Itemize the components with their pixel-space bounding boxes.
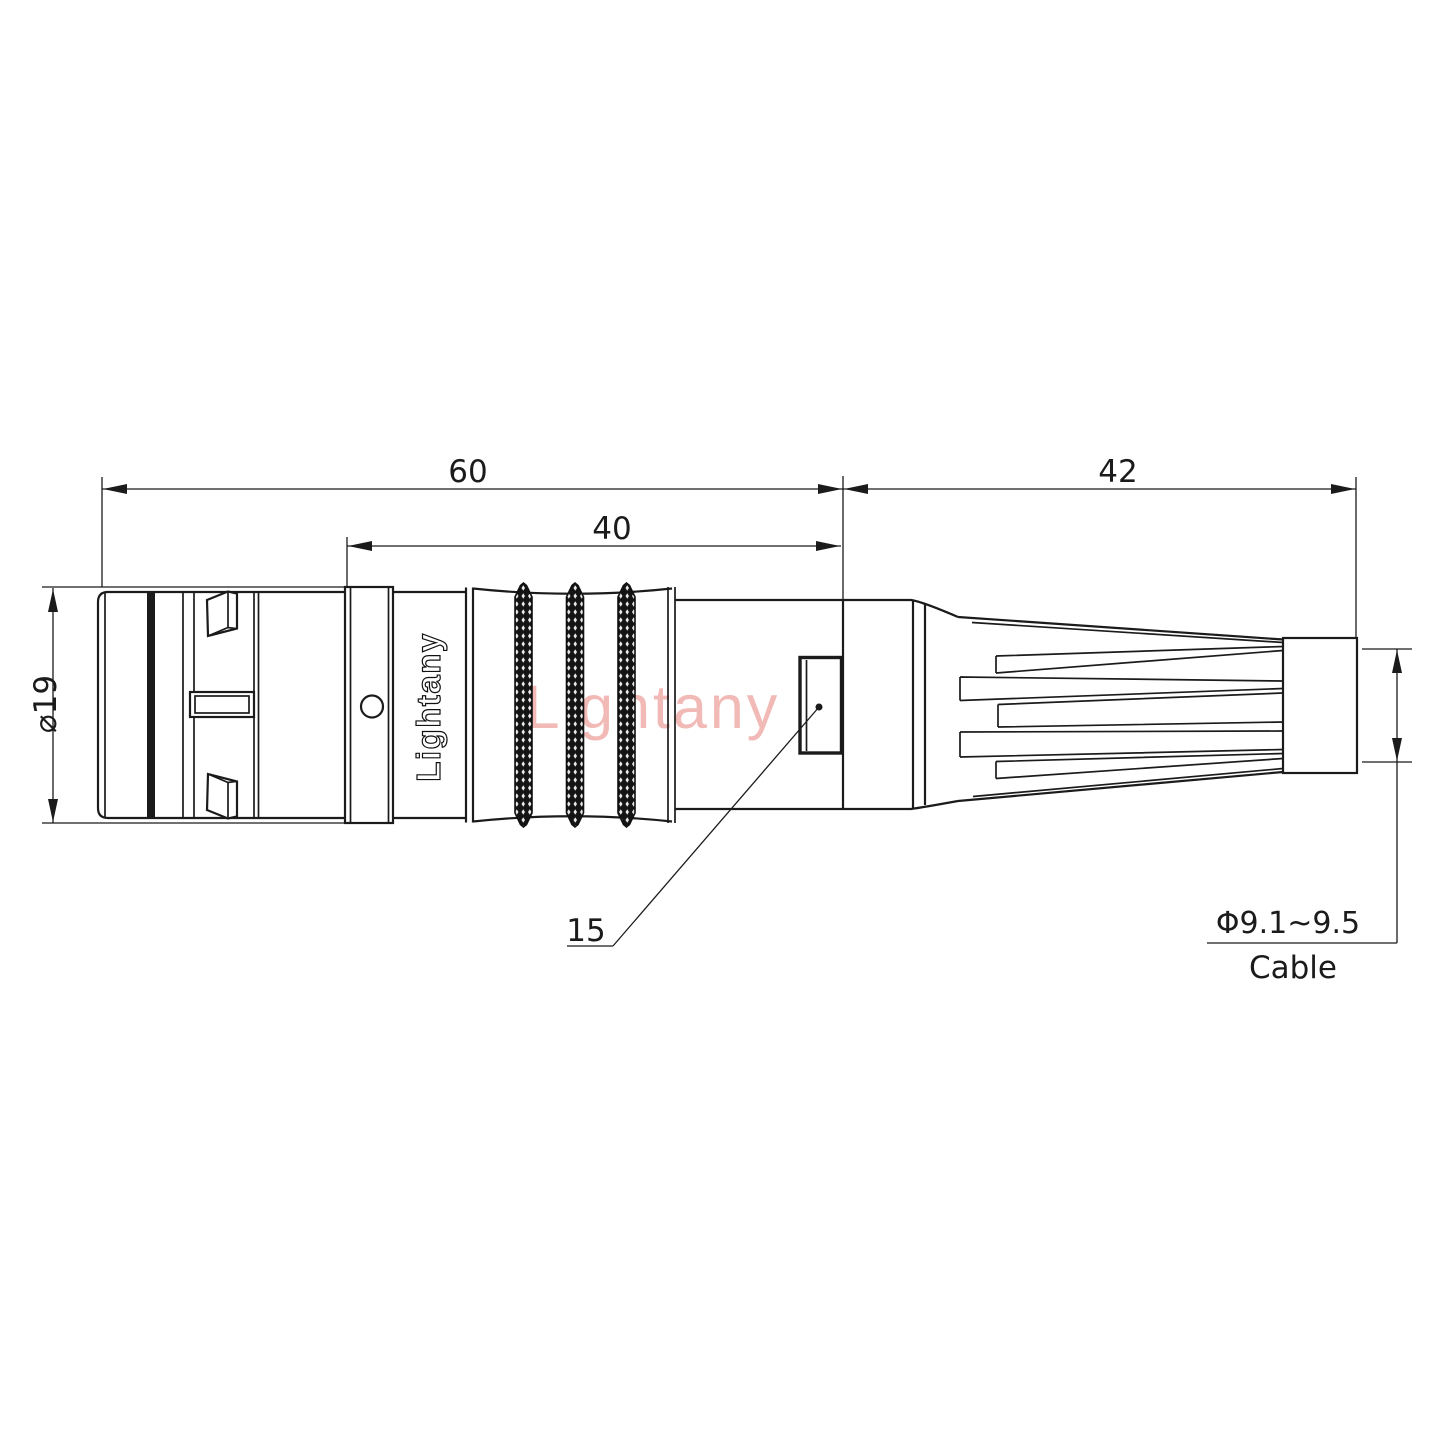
coupling-collar	[345, 587, 393, 823]
set-screw-hole	[361, 696, 383, 718]
cable-label: Cable	[1249, 950, 1337, 986]
cable-sleeve	[1283, 638, 1357, 773]
front-shell-dark-band	[147, 593, 155, 818]
leader-dot	[816, 704, 823, 711]
front-shell	[98, 592, 345, 819]
dim-boot-length-label: 42	[1098, 454, 1137, 490]
watermark-text: Lightany	[526, 673, 781, 741]
strain-relief	[843, 600, 1357, 809]
technical-drawing-canvas: Lightany Lightany	[0, 0, 1440, 1440]
dim-overall-length-label: 60	[448, 454, 487, 490]
dim-cable-diameter-label: Φ9.1~9.5	[1216, 906, 1360, 941]
dim-window-offset-label: 15	[566, 913, 605, 949]
knurl-band-3	[618, 583, 635, 827]
key-slot-inner	[195, 696, 249, 713]
body-marking-text: Lightany	[410, 632, 447, 782]
boot-fin-lines	[960, 623, 1283, 797]
dim-body-diameter-label: ⌀19	[28, 675, 64, 733]
dim-front-length-label: 40	[592, 511, 631, 547]
nut-edges	[843, 600, 958, 809]
knurl-band-1	[515, 583, 532, 827]
knurl-band-2	[567, 583, 584, 827]
grip-barrel: Lightany	[393, 588, 473, 823]
drawing-page: Lightany Lightany	[0, 0, 1440, 1440]
